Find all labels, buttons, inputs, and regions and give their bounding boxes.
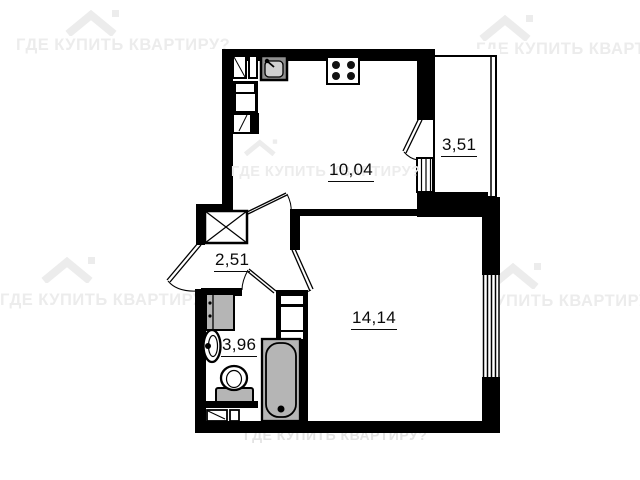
wall-balcony-bottom <box>417 192 488 217</box>
wall-hall-living <box>290 216 300 250</box>
bathroom-sink-icon <box>204 330 221 362</box>
wall-bathroom-left <box>195 289 206 433</box>
bathtub-icon <box>262 339 300 421</box>
washing-machine-icon <box>206 294 234 330</box>
room-label-balcony: 3,51 <box>441 135 477 157</box>
kitchen-sink-icon <box>261 56 287 80</box>
entrance-door-icon <box>167 243 201 291</box>
wall-bottom <box>195 421 500 433</box>
room-label-bathroom: 3,96 <box>221 335 257 357</box>
wardrobe-icon <box>205 211 247 243</box>
wall-hall-left <box>196 204 205 245</box>
window-living-room-icon <box>482 275 500 377</box>
wall-right-lower <box>482 377 500 433</box>
kitchen-cabinet-icon <box>233 56 257 78</box>
stove-icon <box>327 57 359 84</box>
floor-plan <box>0 0 640 480</box>
watermark-text: ГДЕ КУПИТЬ КВАРТИРУ? <box>231 164 420 180</box>
wall-kitchen-bottom <box>290 209 418 216</box>
fridge-icon <box>233 81 258 114</box>
wall-kitchen-balcony <box>417 49 433 120</box>
room-label-hall: 2,51 <box>214 250 250 272</box>
watermark-house-icon <box>243 139 279 156</box>
room-label-kitchen: 10,04 <box>328 160 374 182</box>
vent-shaft-icon <box>276 290 308 342</box>
wall-kitchen-left <box>222 49 233 213</box>
kitchen-counter-icon <box>233 114 258 133</box>
room-label-living: 14,14 <box>351 308 397 330</box>
floor-plan-page: ГДЕ КУПИТЬ КВАРТИРУ? ГДЕ КУПИТЬ КВАРТИРУ… <box>0 0 640 480</box>
